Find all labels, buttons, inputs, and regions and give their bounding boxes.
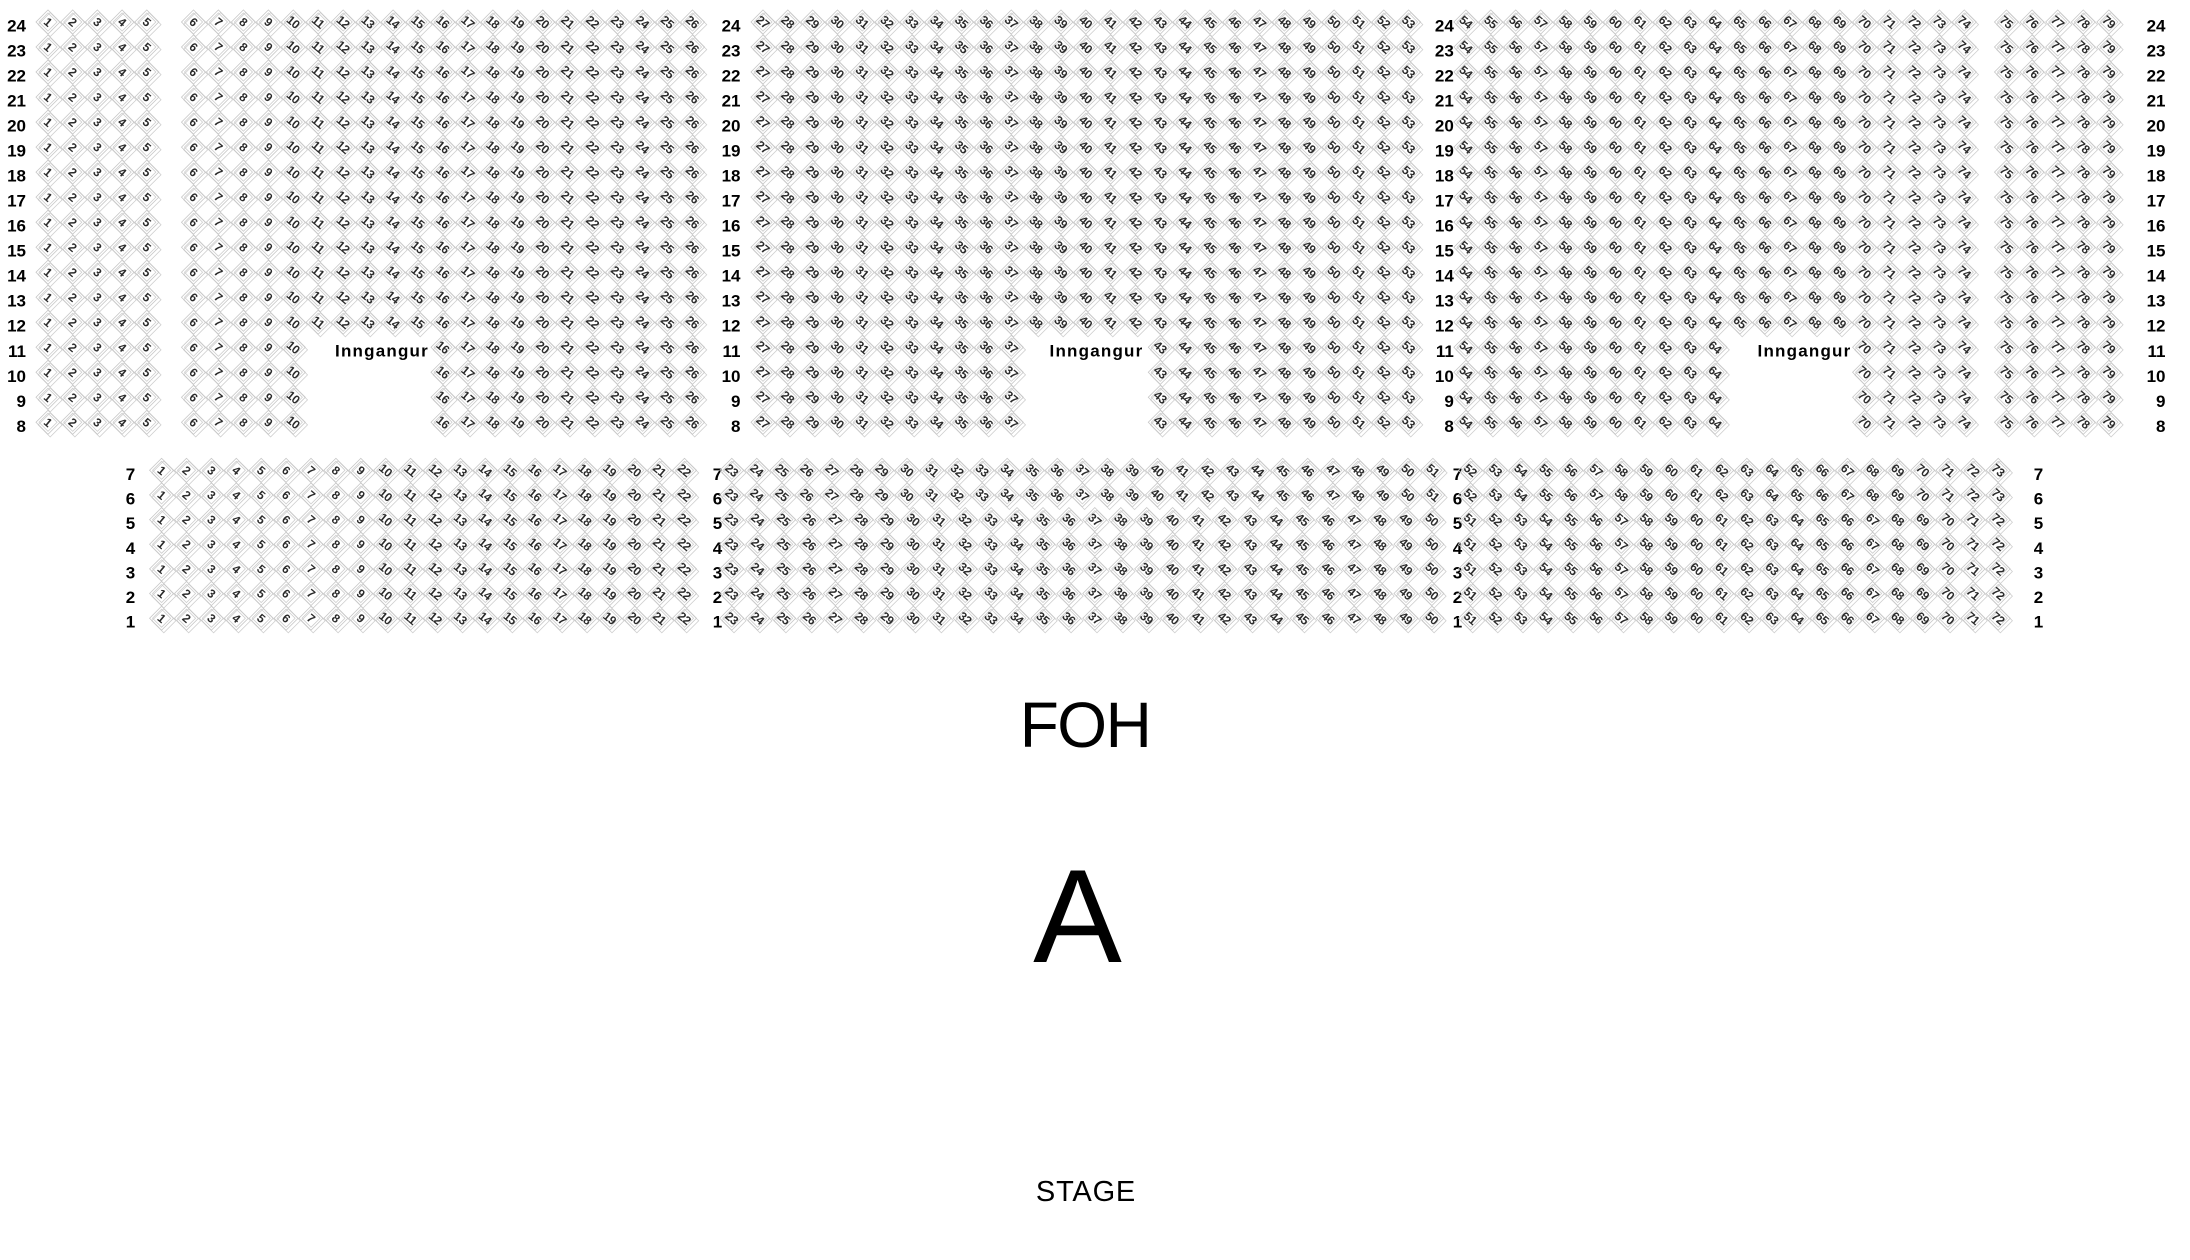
svg-text:69: 69	[1830, 88, 1849, 107]
svg-text:7: 7	[211, 190, 225, 205]
svg-text:65: 65	[1730, 163, 1749, 182]
svg-text:35: 35	[952, 38, 971, 57]
svg-text:35: 35	[952, 188, 971, 207]
svg-text:36: 36	[977, 313, 996, 332]
svg-text:4: 4	[115, 240, 129, 255]
svg-text:20: 20	[1435, 117, 1454, 136]
svg-text:54: 54	[1456, 388, 1475, 407]
svg-text:8: 8	[236, 215, 250, 230]
svg-text:5: 5	[140, 315, 154, 330]
svg-text:2: 2	[66, 315, 80, 330]
svg-text:69: 69	[1888, 486, 1907, 505]
svg-text:59: 59	[1581, 388, 1600, 407]
svg-text:60: 60	[1606, 138, 1625, 157]
svg-text:5: 5	[140, 240, 154, 255]
svg-text:4: 4	[115, 290, 129, 305]
svg-text:4: 4	[115, 65, 129, 80]
svg-text:34: 34	[927, 413, 946, 432]
svg-text:38: 38	[1027, 38, 1046, 57]
svg-text:46: 46	[1225, 363, 1244, 382]
svg-text:51: 51	[1461, 584, 1480, 603]
svg-text:67: 67	[1838, 486, 1857, 505]
svg-text:18: 18	[483, 163, 502, 182]
svg-text:74: 74	[1955, 313, 1974, 332]
svg-text:13: 13	[359, 188, 378, 207]
svg-text:47: 47	[1250, 288, 1269, 307]
svg-text:9: 9	[261, 340, 275, 355]
svg-text:58: 58	[1637, 609, 1656, 628]
svg-text:45: 45	[1273, 461, 1292, 480]
svg-text:12: 12	[426, 461, 445, 480]
svg-text:10: 10	[2147, 367, 2166, 386]
svg-text:51: 51	[1349, 113, 1368, 132]
svg-text:49: 49	[1300, 38, 1319, 57]
svg-text:32: 32	[956, 560, 975, 579]
svg-text:69: 69	[1888, 461, 1907, 480]
svg-text:23: 23	[608, 238, 627, 257]
svg-text:65: 65	[1813, 560, 1832, 579]
svg-text:5: 5	[140, 215, 154, 230]
svg-text:59: 59	[1662, 535, 1681, 554]
svg-text:10: 10	[376, 560, 395, 579]
svg-text:54: 54	[1536, 584, 1555, 603]
svg-text:9: 9	[354, 562, 368, 577]
svg-text:68: 68	[1805, 263, 1824, 282]
svg-text:62: 62	[1656, 163, 1675, 182]
svg-text:62: 62	[1737, 510, 1756, 529]
svg-text:30: 30	[904, 510, 923, 529]
svg-text:36: 36	[977, 238, 996, 257]
svg-text:23: 23	[608, 113, 627, 132]
svg-text:34: 34	[927, 388, 946, 407]
svg-text:34: 34	[927, 338, 946, 357]
svg-text:42: 42	[1215, 584, 1234, 603]
svg-text:52: 52	[1374, 213, 1393, 232]
svg-text:43: 43	[1223, 461, 1242, 480]
svg-text:48: 48	[1275, 63, 1294, 82]
svg-text:27: 27	[753, 263, 772, 282]
svg-text:56: 56	[1506, 213, 1525, 232]
svg-text:24: 24	[633, 313, 652, 332]
svg-text:37: 37	[1002, 213, 1021, 232]
svg-text:44: 44	[1267, 535, 1286, 554]
svg-text:48: 48	[1275, 138, 1294, 157]
svg-text:63: 63	[1681, 338, 1700, 357]
svg-text:10: 10	[284, 13, 303, 32]
svg-text:59: 59	[1637, 486, 1656, 505]
svg-text:50: 50	[1422, 535, 1441, 554]
svg-text:8: 8	[236, 290, 250, 305]
svg-text:37: 37	[1002, 163, 1021, 182]
svg-text:53: 53	[1399, 213, 1418, 232]
svg-text:76: 76	[2023, 88, 2042, 107]
svg-text:73: 73	[1930, 213, 1949, 232]
svg-text:30: 30	[828, 363, 847, 382]
svg-text:65: 65	[1730, 188, 1749, 207]
svg-text:59: 59	[1581, 263, 1600, 282]
svg-text:17: 17	[458, 238, 477, 257]
svg-text:29: 29	[872, 461, 891, 480]
svg-text:52: 52	[1374, 63, 1393, 82]
svg-text:40: 40	[1076, 288, 1095, 307]
svg-text:21: 21	[650, 486, 669, 505]
svg-text:47: 47	[1345, 609, 1364, 628]
svg-text:73: 73	[1930, 313, 1949, 332]
svg-text:31: 31	[853, 388, 872, 407]
svg-text:8: 8	[236, 165, 250, 180]
svg-text:21: 21	[558, 363, 577, 382]
svg-text:57: 57	[1531, 138, 1550, 157]
svg-text:26: 26	[683, 313, 702, 332]
svg-text:30: 30	[828, 88, 847, 107]
svg-text:19: 19	[2147, 142, 2166, 161]
svg-text:19: 19	[600, 560, 619, 579]
svg-text:5: 5	[140, 165, 154, 180]
svg-text:78: 78	[2074, 288, 2093, 307]
svg-text:68: 68	[1805, 313, 1824, 332]
svg-text:22: 22	[583, 363, 602, 382]
svg-text:31: 31	[853, 63, 872, 82]
svg-text:55: 55	[1481, 213, 1500, 232]
svg-text:16: 16	[433, 63, 452, 82]
svg-text:5: 5	[713, 514, 722, 533]
svg-text:67: 67	[1780, 163, 1799, 182]
svg-text:68: 68	[1805, 163, 1824, 182]
svg-text:67: 67	[1780, 113, 1799, 132]
svg-text:68: 68	[1805, 213, 1824, 232]
svg-text:7: 7	[304, 611, 318, 626]
svg-text:36: 36	[977, 113, 996, 132]
svg-text:55: 55	[1481, 13, 1500, 32]
svg-text:13: 13	[359, 313, 378, 332]
svg-text:19: 19	[600, 510, 619, 529]
svg-text:34: 34	[927, 88, 946, 107]
svg-text:66: 66	[1755, 63, 1774, 82]
svg-text:65: 65	[1730, 38, 1749, 57]
svg-text:48: 48	[1275, 38, 1294, 57]
svg-text:22: 22	[583, 63, 602, 82]
svg-text:32: 32	[956, 584, 975, 603]
svg-text:3: 3	[90, 65, 104, 80]
svg-text:40: 40	[1076, 188, 1095, 207]
svg-text:2: 2	[66, 40, 80, 55]
svg-text:14: 14	[384, 188, 403, 207]
svg-text:51: 51	[1349, 238, 1368, 257]
svg-text:49: 49	[1300, 163, 1319, 182]
svg-text:45: 45	[1273, 486, 1292, 505]
svg-text:23: 23	[2147, 42, 2166, 61]
svg-text:6: 6	[186, 290, 200, 305]
svg-text:78: 78	[2074, 88, 2093, 107]
svg-text:3: 3	[204, 488, 218, 503]
svg-text:7: 7	[211, 165, 225, 180]
svg-text:72: 72	[1905, 188, 1924, 207]
svg-text:29: 29	[803, 263, 822, 282]
svg-text:11: 11	[309, 288, 328, 307]
svg-text:46: 46	[1298, 486, 1317, 505]
svg-text:17: 17	[458, 88, 477, 107]
svg-text:77: 77	[2048, 63, 2067, 82]
svg-text:52: 52	[1374, 313, 1393, 332]
svg-text:27: 27	[753, 388, 772, 407]
svg-text:36: 36	[977, 413, 996, 432]
svg-text:18: 18	[575, 584, 594, 603]
svg-text:37: 37	[1085, 535, 1104, 554]
svg-text:72: 72	[1905, 388, 1924, 407]
svg-text:55: 55	[1481, 113, 1500, 132]
svg-text:44: 44	[1176, 138, 1195, 157]
svg-text:33: 33	[902, 138, 921, 157]
svg-text:42: 42	[1126, 163, 1145, 182]
svg-text:6: 6	[186, 15, 200, 30]
svg-text:49: 49	[1300, 138, 1319, 157]
svg-text:56: 56	[1506, 413, 1525, 432]
svg-text:41: 41	[1189, 609, 1208, 628]
svg-text:70: 70	[1855, 38, 1874, 57]
svg-text:39: 39	[1051, 163, 1070, 182]
svg-text:70: 70	[1855, 263, 1874, 282]
svg-text:32: 32	[948, 461, 967, 480]
svg-text:3: 3	[90, 115, 104, 130]
svg-text:27: 27	[822, 486, 841, 505]
svg-text:33: 33	[902, 238, 921, 257]
svg-text:13: 13	[451, 535, 470, 554]
svg-text:69: 69	[1830, 138, 1849, 157]
svg-text:78: 78	[2074, 13, 2093, 32]
svg-text:56: 56	[1506, 63, 1525, 82]
svg-text:8: 8	[236, 65, 250, 80]
svg-text:35: 35	[1033, 535, 1052, 554]
svg-text:49: 49	[1300, 88, 1319, 107]
svg-text:22: 22	[675, 510, 694, 529]
svg-text:17: 17	[458, 138, 477, 157]
svg-text:20: 20	[533, 213, 552, 232]
svg-text:62: 62	[1712, 461, 1731, 480]
svg-text:53: 53	[1399, 238, 1418, 257]
svg-text:57: 57	[1531, 113, 1550, 132]
svg-text:10: 10	[284, 388, 303, 407]
svg-text:25: 25	[658, 288, 677, 307]
svg-text:27: 27	[753, 138, 772, 157]
svg-text:18: 18	[2147, 167, 2166, 186]
svg-text:11: 11	[309, 263, 328, 282]
svg-text:65: 65	[1730, 138, 1749, 157]
svg-text:69: 69	[1830, 288, 1849, 307]
svg-text:55: 55	[1536, 486, 1555, 505]
svg-text:7: 7	[211, 390, 225, 405]
svg-text:61: 61	[1631, 13, 1650, 32]
svg-text:9: 9	[1444, 392, 1453, 411]
svg-text:17: 17	[458, 38, 477, 57]
svg-text:1: 1	[41, 90, 55, 105]
svg-text:1: 1	[41, 40, 55, 55]
svg-text:11: 11	[309, 13, 328, 32]
svg-text:71: 71	[1880, 238, 1899, 257]
svg-text:23: 23	[722, 535, 741, 554]
svg-text:5: 5	[2034, 514, 2043, 533]
svg-text:6: 6	[2034, 489, 2043, 508]
svg-text:2: 2	[66, 415, 80, 430]
svg-text:71: 71	[1964, 609, 1983, 628]
svg-text:29: 29	[803, 413, 822, 432]
svg-text:2: 2	[179, 562, 193, 577]
svg-text:79: 79	[2099, 138, 2118, 157]
svg-text:59: 59	[1581, 63, 1600, 82]
svg-text:37: 37	[1073, 461, 1092, 480]
svg-text:47: 47	[1345, 535, 1364, 554]
svg-text:2: 2	[66, 115, 80, 130]
svg-text:10: 10	[284, 413, 303, 432]
svg-text:37: 37	[1085, 584, 1104, 603]
svg-text:67: 67	[1780, 213, 1799, 232]
svg-text:8: 8	[1444, 417, 1453, 436]
svg-text:68: 68	[1888, 510, 1907, 529]
svg-text:34: 34	[1007, 510, 1026, 529]
svg-text:52: 52	[1374, 388, 1393, 407]
svg-text:52: 52	[1486, 510, 1505, 529]
svg-text:12: 12	[334, 13, 353, 32]
svg-text:3: 3	[204, 562, 218, 577]
svg-text:9: 9	[354, 611, 368, 626]
svg-text:9: 9	[261, 15, 275, 30]
svg-text:16: 16	[433, 263, 452, 282]
svg-text:39: 39	[1137, 535, 1156, 554]
svg-text:8: 8	[236, 415, 250, 430]
svg-text:57: 57	[1531, 88, 1550, 107]
svg-text:17: 17	[550, 461, 569, 480]
svg-text:43: 43	[1241, 584, 1260, 603]
svg-text:57: 57	[1531, 238, 1550, 257]
svg-text:49: 49	[1300, 388, 1319, 407]
svg-text:50: 50	[1325, 138, 1344, 157]
svg-text:37: 37	[1002, 38, 1021, 57]
svg-text:40: 40	[1163, 609, 1182, 628]
svg-text:71: 71	[1880, 388, 1899, 407]
svg-text:31: 31	[923, 461, 942, 480]
svg-text:33: 33	[982, 510, 1001, 529]
svg-text:28: 28	[852, 510, 871, 529]
svg-text:70: 70	[1855, 288, 1874, 307]
svg-text:39: 39	[1051, 238, 1070, 257]
svg-text:59: 59	[1581, 213, 1600, 232]
svg-text:6: 6	[279, 611, 293, 626]
svg-text:52: 52	[1486, 584, 1505, 603]
svg-text:79: 79	[2099, 213, 2118, 232]
svg-text:74: 74	[1955, 113, 1974, 132]
svg-text:53: 53	[1399, 38, 1418, 57]
svg-text:56: 56	[1561, 486, 1580, 505]
svg-text:51: 51	[1349, 313, 1368, 332]
svg-text:27: 27	[826, 584, 845, 603]
svg-text:76: 76	[2023, 63, 2042, 82]
svg-text:34: 34	[927, 288, 946, 307]
svg-text:77: 77	[2048, 388, 2067, 407]
svg-text:60: 60	[1606, 13, 1625, 32]
svg-text:49: 49	[1373, 486, 1392, 505]
svg-text:63: 63	[1681, 313, 1700, 332]
svg-text:27: 27	[753, 213, 772, 232]
svg-text:71: 71	[1880, 163, 1899, 182]
svg-text:73: 73	[1989, 461, 2008, 480]
svg-text:35: 35	[952, 288, 971, 307]
svg-text:62: 62	[1656, 13, 1675, 32]
svg-text:76: 76	[2023, 188, 2042, 207]
svg-text:33: 33	[982, 609, 1001, 628]
svg-text:2: 2	[179, 488, 193, 503]
svg-text:6: 6	[279, 488, 293, 503]
svg-text:29: 29	[878, 560, 897, 579]
svg-text:35: 35	[952, 313, 971, 332]
svg-text:61: 61	[1631, 288, 1650, 307]
svg-text:70: 70	[1913, 486, 1932, 505]
svg-text:31: 31	[853, 238, 872, 257]
svg-text:28: 28	[847, 486, 866, 505]
svg-text:41: 41	[1101, 88, 1120, 107]
svg-text:54: 54	[1456, 288, 1475, 307]
svg-text:28: 28	[778, 238, 797, 257]
svg-text:4: 4	[115, 215, 129, 230]
svg-text:72: 72	[1905, 13, 1924, 32]
svg-text:3: 3	[90, 240, 104, 255]
svg-text:14: 14	[476, 461, 495, 480]
svg-text:76: 76	[2023, 13, 2042, 32]
svg-text:67: 67	[1780, 188, 1799, 207]
svg-text:8: 8	[329, 562, 343, 577]
svg-text:52: 52	[1374, 163, 1393, 182]
svg-text:68: 68	[1863, 461, 1882, 480]
svg-text:28: 28	[852, 560, 871, 579]
svg-text:18: 18	[483, 263, 502, 282]
svg-text:18: 18	[483, 213, 502, 232]
svg-text:28: 28	[778, 38, 797, 57]
svg-text:41: 41	[1101, 188, 1120, 207]
svg-text:66: 66	[1755, 313, 1774, 332]
svg-text:73: 73	[1930, 388, 1949, 407]
svg-text:50: 50	[1422, 510, 1441, 529]
svg-text:35: 35	[1033, 609, 1052, 628]
svg-text:19: 19	[508, 63, 527, 82]
svg-text:33: 33	[902, 63, 921, 82]
svg-text:55: 55	[1481, 413, 1500, 432]
svg-text:9: 9	[354, 586, 368, 601]
svg-text:15: 15	[408, 138, 427, 157]
svg-text:15: 15	[501, 584, 520, 603]
svg-text:11: 11	[309, 188, 328, 207]
svg-text:62: 62	[1656, 238, 1675, 257]
svg-text:31: 31	[853, 113, 872, 132]
svg-text:15: 15	[2147, 242, 2166, 261]
svg-text:21: 21	[558, 388, 577, 407]
svg-text:45: 45	[1200, 113, 1219, 132]
svg-text:65: 65	[1730, 13, 1749, 32]
svg-text:70: 70	[1855, 63, 1874, 82]
svg-text:75: 75	[1997, 138, 2016, 157]
svg-text:28: 28	[852, 584, 871, 603]
svg-text:78: 78	[2074, 238, 2093, 257]
svg-text:38: 38	[1027, 63, 1046, 82]
svg-text:29: 29	[878, 584, 897, 603]
svg-text:56: 56	[1506, 38, 1525, 57]
svg-text:43: 43	[1151, 388, 1170, 407]
svg-text:41: 41	[1173, 461, 1192, 480]
svg-text:60: 60	[1687, 535, 1706, 554]
svg-text:73: 73	[1930, 338, 1949, 357]
svg-text:6: 6	[186, 365, 200, 380]
svg-text:64: 64	[1706, 38, 1725, 57]
svg-text:11: 11	[309, 163, 328, 182]
svg-text:44: 44	[1176, 313, 1195, 332]
svg-text:42: 42	[1126, 288, 1145, 307]
